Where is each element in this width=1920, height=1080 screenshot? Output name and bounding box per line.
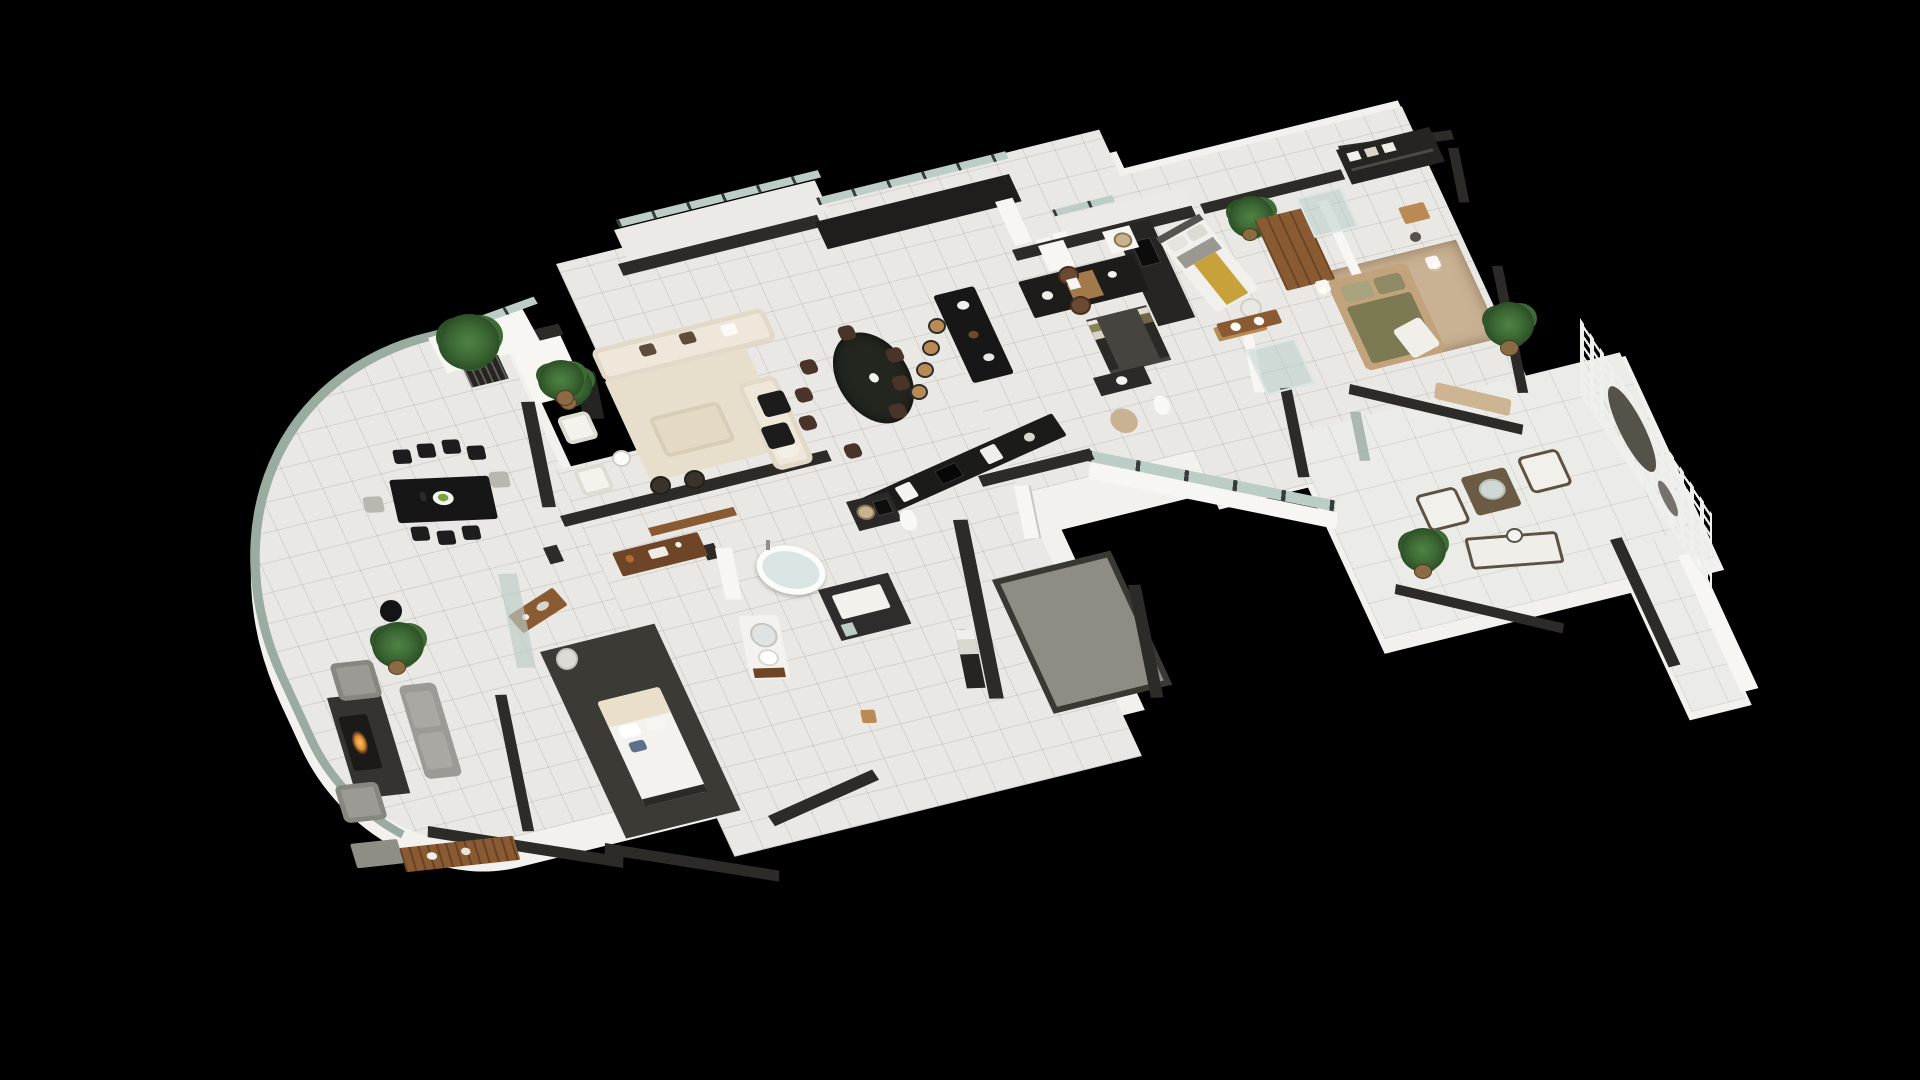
bed2-pillow-sage-1 [1339,280,1376,304]
planter-palm [438,314,500,370]
desk-tray [534,599,551,612]
dishwasher-appliance [979,443,1004,464]
dining-chair-a2 [416,443,437,458]
bar-stool-3 [916,362,934,378]
dining-chair-a6 [436,530,457,545]
counter-dish [1022,431,1037,443]
stool-bedroom2 [1410,232,1421,242]
island-plate-1 [956,300,971,311]
tub-faucet [766,540,770,550]
console-tray [648,546,670,559]
bath2-sink-2 [1252,316,1265,327]
closet2-clothes-1 [1346,151,1361,162]
stool-dark-2 [684,470,705,489]
sofa-pillow-brown-1 [638,343,658,358]
sideboard-bowl-2 [460,847,471,855]
bath2-sink-1 [1229,321,1242,332]
plant-lounge-pot [388,660,406,675]
lamp-bed2-left [1320,287,1327,294]
closet2-clothes-2 [1364,146,1379,157]
desk-chair-white [556,648,578,670]
lamp-bed2-right [1432,262,1439,269]
vanity-wood-drawer [753,668,786,678]
island-plate-2 [982,352,996,362]
bar-stool-4 [910,384,928,400]
dining-chair-a5 [410,526,431,541]
plant-terrace-south-pot [1414,564,1432,579]
master-pillow-blue [628,739,648,753]
dining-chair-a3 [441,439,462,454]
round-mirror [748,623,780,648]
closet2-clothes-3 [1381,142,1396,153]
sofa-pillow-white [719,322,739,337]
wall-wing-east [1448,148,1469,203]
end-chair-gray-2 [488,471,511,488]
decanter [419,492,427,502]
bar-stool-1 [928,318,946,334]
vessel-sink [756,649,780,667]
tv-cabinet-lounge [350,839,404,868]
cabinet-glass-strip [841,622,858,637]
counter-cups [1106,270,1118,279]
cabinet-white-top [831,584,890,620]
storage-basket [1111,231,1135,250]
side-table-white [612,450,631,467]
plant-terrace-north-pot [1500,340,1519,356]
flower-vase [868,372,881,383]
sofa-pillow-brown-2 [678,331,698,346]
console-vase-1 [624,554,635,563]
outdoor-side-table [1506,528,1523,543]
nook-chair-leather-2 [1070,296,1091,315]
sofa-gray-cushion-1 [404,690,441,728]
island-bowl [967,330,980,340]
dining-chair-a7 [461,525,482,540]
chair-small-room [860,710,877,724]
plant-small-balcony-pot [556,390,574,406]
master-pillow-1 [617,723,642,740]
counter-bowl [1040,290,1054,301]
cooktop [934,462,964,485]
end-chair-gray-1 [362,496,385,513]
stool-dark-1 [650,476,671,495]
dining-chair-a4 [466,445,487,460]
master-pillow-2 [645,716,670,733]
dining-table-a [389,476,498,524]
sideboard-bowl-1 [426,852,438,861]
glass-bowl [1475,476,1509,502]
sculpture-pedestal [378,598,404,624]
fire-flames [349,730,372,756]
ensuite-sink [1115,375,1129,386]
floor-plan-scene [0,0,1920,1080]
bed2-pillow-sage-2 [1372,272,1407,295]
oven-appliance [894,481,919,502]
console-candle [674,541,682,548]
plant-bedroom1-pot [1242,228,1258,241]
bar-stool-2 [922,340,940,356]
sofa-gray-cushion-2 [417,731,454,769]
dining-chair-a1 [392,449,413,464]
